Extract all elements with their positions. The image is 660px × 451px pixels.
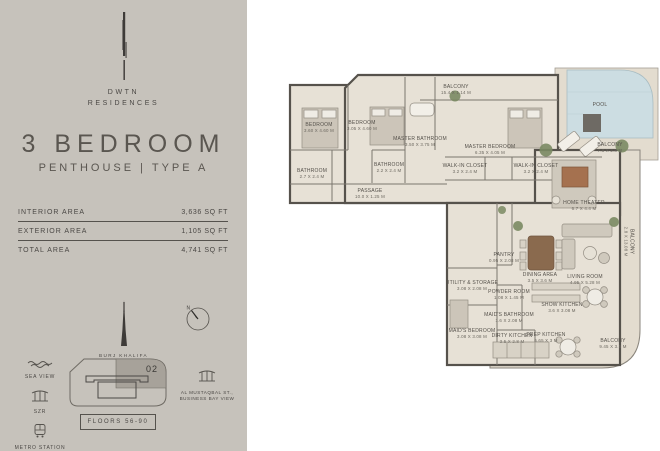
- room-label-maids-bathroom: MAID'S BATHROOM1.6 X 2.08 M: [481, 312, 537, 323]
- compass-icon: N: [182, 303, 212, 333]
- highway-icon: [31, 388, 49, 403]
- floors-badge: FLOORS 56-90: [80, 414, 156, 430]
- unit-number: 02: [146, 364, 158, 374]
- area-label: EXTERIOR AREA: [18, 228, 87, 235]
- area-value: 4,741 SQ FT: [181, 247, 228, 254]
- table-row: TOTAL AREA 4,741 SQ FT: [18, 241, 228, 259]
- table-row: EXTERIOR AREA 1,105 SQ FT: [18, 222, 228, 241]
- room-label-pool: POOL: [572, 102, 628, 108]
- metro-item: METRO STATION: [8, 423, 72, 451]
- street-view-item: AL MUSTAQBAL ST., BUSINESS BAY VIEW: [178, 368, 236, 402]
- room-label-bedroom-2: BEDROOM3.05 X 4.60 M: [334, 120, 390, 131]
- room-label-living-room: LIVING ROOM4.95 X 5.28 M: [557, 274, 613, 285]
- street-view-label: AL MUSTAQBAL ST., BUSINESS BAY VIEW: [178, 390, 236, 402]
- room-label-walk-in-closet-2: WALK-IN CLOSET3.2 X 2.4 M: [508, 163, 564, 174]
- street-icon: [198, 368, 216, 383]
- waves-icon: [27, 360, 53, 368]
- brand-stroke-icon: [116, 12, 132, 82]
- floor-plan: BEDROOM3.60 X 4.60 M BATHROOM2.7 X 2.4 M…: [250, 0, 660, 451]
- floor-plan-svg: [250, 0, 660, 451]
- area-value: 3,636 SQ FT: [181, 209, 228, 216]
- area-label: INTERIOR AREA: [18, 209, 85, 216]
- area-table: INTERIOR AREA 3,636 SQ FT EXTERIOR AREA …: [18, 203, 228, 259]
- room-label-master-bedroom: MASTER BEDROOM6.35 X 4.05 M: [462, 144, 518, 155]
- brochure-page: DWTN RESIDENCES 3 BEDROOM PENTHOUSE | TY…: [0, 0, 660, 451]
- page-subtitle: PENTHOUSE | TYPE A: [0, 162, 247, 174]
- sidebar: DWTN RESIDENCES 3 BEDROOM PENTHOUSE | TY…: [0, 0, 247, 451]
- burj-khalifa-icon: [117, 300, 131, 346]
- room-label-balcony-terrace: BALCONY7.8 X 2.8 M: [582, 142, 638, 153]
- building-footprint: 02: [62, 356, 170, 415]
- room-label-pantry: PANTRY0.95 X 2.08 M: [476, 252, 532, 263]
- footprint-diagram: 02: [62, 356, 170, 410]
- metro-label: METRO STATION: [8, 445, 72, 451]
- room-label-powder-room: POWDER ROOM1.08 X 1.45 M: [481, 289, 537, 300]
- logo-mark: [0, 12, 247, 87]
- room-label-show-kitchen: SHOW KITCHEN3.6 X 3.08 M: [534, 302, 590, 313]
- room-label-bathroom-1: BATHROOM2.7 X 2.4 M: [284, 168, 340, 179]
- brand-line1: DWTN: [0, 88, 247, 99]
- room-label-passage: PASSAGE10.0 X 1.25 M: [342, 188, 398, 199]
- svg-text:N: N: [187, 306, 191, 312]
- compass: N: [182, 303, 212, 338]
- room-label-balcony-top: BALCONY15.4 X 1.14 M: [428, 84, 484, 95]
- room-label-walk-in-closet-1: WALK-IN CLOSET3.2 X 2.4 M: [437, 163, 493, 174]
- room-label-home-theater: HOME THEATER6.7 X 4.4 M: [556, 200, 612, 211]
- table-row: INTERIOR AREA 3,636 SQ FT: [18, 203, 228, 222]
- room-label-bathroom-2: BATHROOM2.2 X 2.4 M: [361, 162, 417, 173]
- train-icon: [32, 423, 48, 439]
- brand-line2: RESIDENCES: [0, 99, 247, 110]
- brand-name: DWTN RESIDENCES: [0, 88, 247, 109]
- room-label-master-bathroom: MASTER BATHROOM3.50 X 3.75 M: [392, 136, 448, 147]
- room-label-prep-kitchen: PREP KITCHEN6.65 X 3 M: [518, 332, 574, 343]
- room-label-balcony-bottom: BALCONY9.45 X 3.5 M: [585, 338, 641, 349]
- floors-label: FLOORS 56-90: [88, 419, 149, 425]
- room-label-balcony-right: BALCONY2.8 X 13.08 M: [623, 214, 634, 270]
- area-label: TOTAL AREA: [18, 247, 70, 254]
- page-title: 3 BEDROOM: [0, 130, 247, 159]
- area-value: 1,105 SQ FT: [181, 228, 228, 235]
